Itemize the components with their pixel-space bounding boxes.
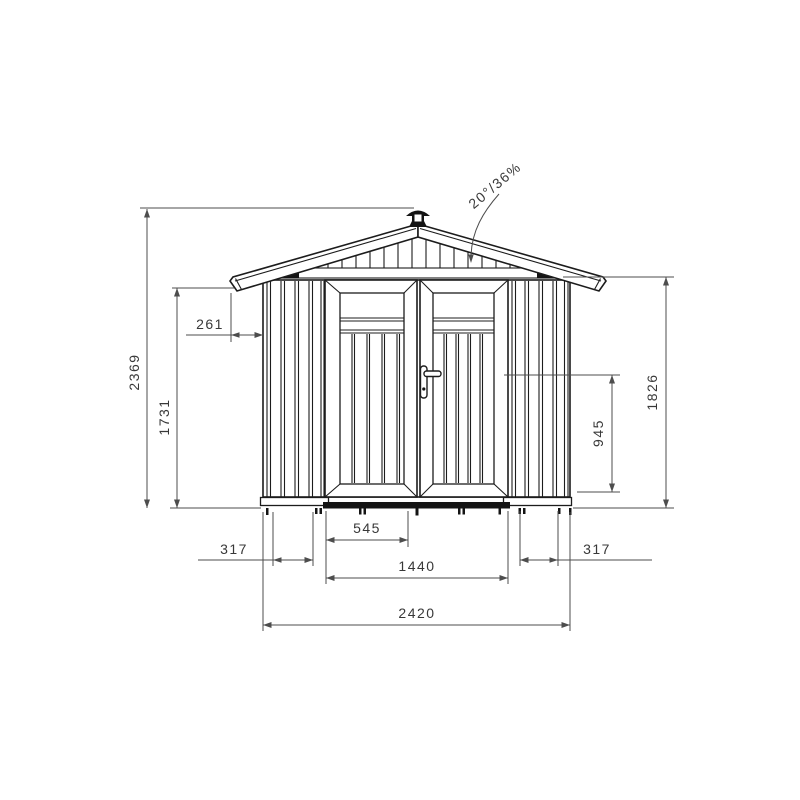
dim-label-overall-width: 2420 xyxy=(398,605,435,621)
dim-door-opening-width: 1440 xyxy=(326,558,508,578)
left-sill xyxy=(261,498,329,506)
right-sill xyxy=(504,498,572,506)
ridge-finial xyxy=(406,211,430,228)
handle-lever xyxy=(424,371,441,377)
dim-label-right-wall-height: 1826 xyxy=(644,373,660,410)
dim-label-door-opening-width: 1440 xyxy=(398,558,435,574)
dim-roof-overhang: 261 xyxy=(186,316,263,338)
shed-elevation-drawing: 2369 1731 261 1826 945 545 xyxy=(0,0,800,800)
double-doors xyxy=(325,280,508,497)
roof-pitch-label: 20°/36% xyxy=(465,159,524,212)
dim-label-door-leaf-width: 545 xyxy=(353,520,381,536)
dim-eave-height: 1731 xyxy=(156,288,177,508)
right-door xyxy=(420,280,508,497)
dim-label-right-panel-width: 317 xyxy=(583,541,611,557)
dim-right-wall-height: 1826 xyxy=(644,277,666,508)
threshold xyxy=(323,502,510,509)
dim-label-overall-height: 2369 xyxy=(126,353,142,390)
dim-label-eave-height: 1731 xyxy=(156,398,172,435)
dim-label-left-panel-width: 317 xyxy=(220,541,248,557)
dim-label-handle-height: 945 xyxy=(590,419,606,447)
dim-overall-height: 2369 xyxy=(126,209,147,508)
dim-overall-width: 2420 xyxy=(263,605,570,625)
drawing-canvas: 2369 1731 261 1826 945 545 xyxy=(0,0,800,800)
anchor-ticks xyxy=(266,508,572,516)
dim-handle-height: 945 xyxy=(590,375,612,492)
roof xyxy=(230,211,606,292)
gable-trim xyxy=(270,268,564,278)
dim-right-panel-width: 317 xyxy=(520,541,652,563)
base xyxy=(261,498,572,516)
dim-door-leaf-width: 545 xyxy=(326,520,408,540)
dim-left-panel-width: 317 xyxy=(198,541,313,563)
keyhole xyxy=(422,387,425,390)
left-door xyxy=(325,280,417,497)
dim-label-roof-overhang: 261 xyxy=(196,316,224,332)
